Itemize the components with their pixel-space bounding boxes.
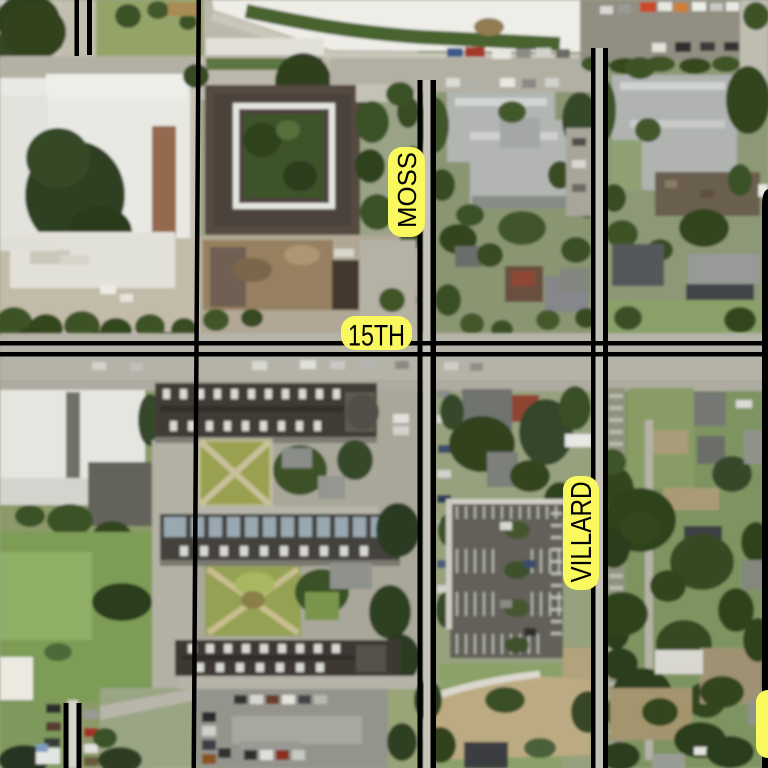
- svg-text:VILLARD: VILLARD: [566, 482, 598, 583]
- svg-text:15TH: 15TH: [348, 320, 405, 353]
- svg-text:MOSS: MOSS: [392, 152, 422, 228]
